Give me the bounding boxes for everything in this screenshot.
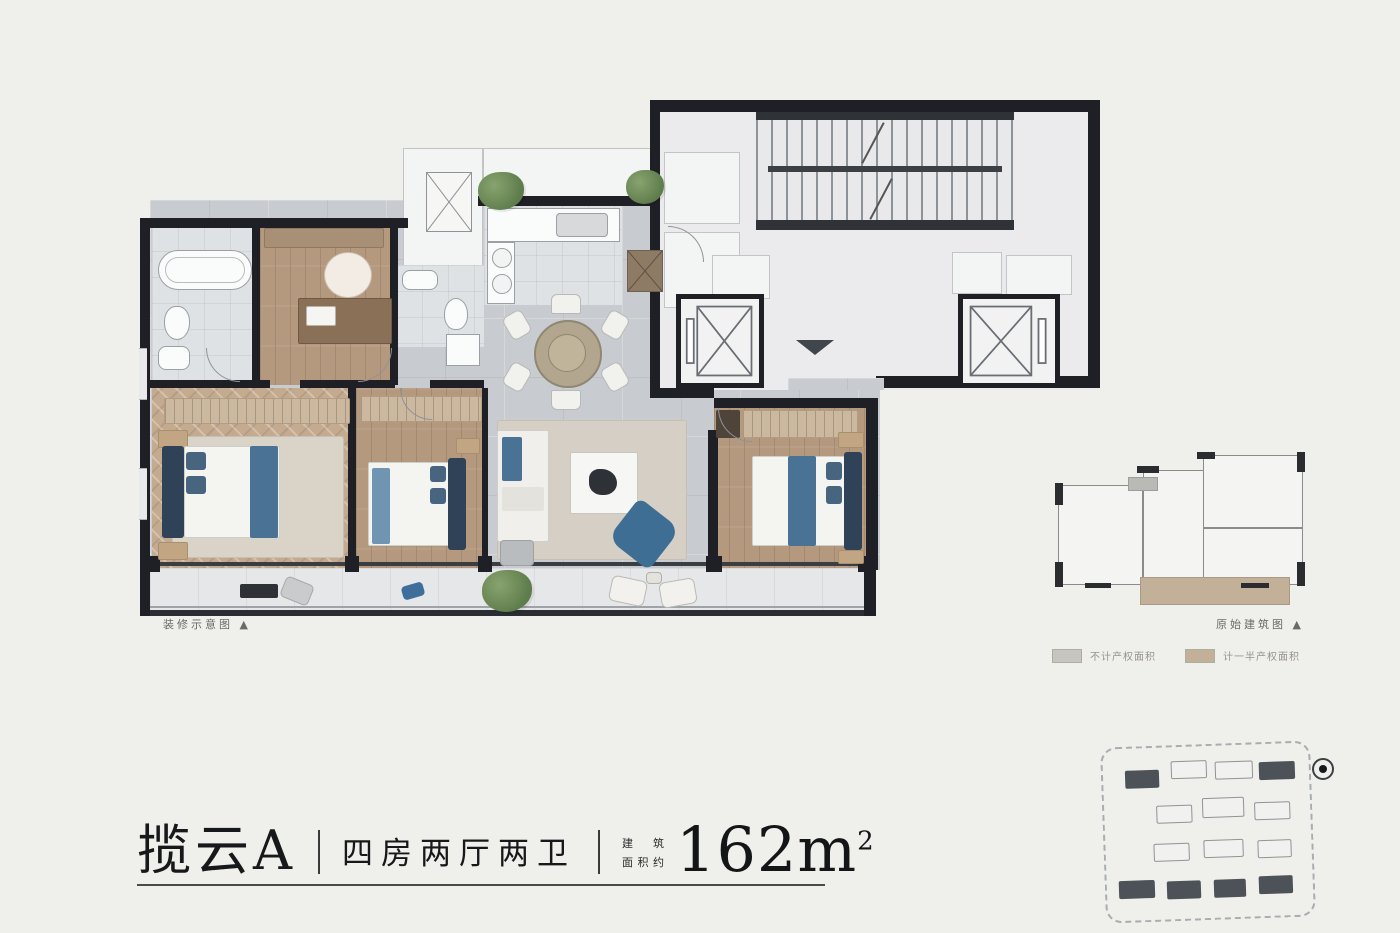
site-building xyxy=(1203,839,1244,858)
dining-chair-icon xyxy=(551,390,581,410)
legend-item: 计一半产权面积 xyxy=(1185,648,1300,663)
tray-icon xyxy=(646,572,662,584)
unit-name: 揽云A xyxy=(137,824,296,878)
wall xyxy=(252,225,260,383)
key-wall xyxy=(1137,466,1159,473)
key-wall xyxy=(1297,562,1305,586)
pillow xyxy=(430,466,446,482)
divider xyxy=(598,830,600,874)
shower-icon xyxy=(446,334,480,366)
key-wall xyxy=(1085,583,1111,588)
site-building-highlighted xyxy=(1259,875,1294,894)
title-bar: 揽云A 四房两厅两卫 建筑 面积约 162m2 xyxy=(137,822,875,878)
stair-rail xyxy=(768,166,1002,172)
wall xyxy=(650,388,714,398)
chair-icon xyxy=(324,252,372,298)
elevator-icon xyxy=(676,294,764,388)
toilet-icon xyxy=(444,298,468,330)
key-wall xyxy=(1241,583,1269,588)
wall xyxy=(300,380,395,388)
bathtub-icon xyxy=(158,250,252,290)
right-plan-caption: 原始建筑图 ▲ xyxy=(1216,616,1304,632)
site-building xyxy=(1171,760,1208,779)
unit-layout: 四房两厅两卫 xyxy=(342,831,576,878)
site-building-highlighted xyxy=(1214,879,1247,898)
wall xyxy=(650,100,1100,112)
key-plan xyxy=(1045,450,1315,615)
wall xyxy=(430,380,484,388)
utility-shaft xyxy=(712,255,770,299)
site-building xyxy=(1153,843,1190,862)
floorplan-page: 装修示意图 ▲ 原始建筑图 ▲ 不计产权面积 计一半产权面积 揽云A 四房两厅两… xyxy=(0,0,1400,933)
toilet-icon xyxy=(164,306,190,340)
wall xyxy=(140,218,260,228)
bed-headboard xyxy=(448,458,466,550)
stair-wall xyxy=(756,112,1014,120)
stair-wall xyxy=(756,220,1014,230)
site-building xyxy=(1215,760,1254,779)
pillow xyxy=(430,488,446,504)
key-plan-room xyxy=(1203,455,1303,528)
title-underline xyxy=(137,884,825,886)
wall xyxy=(866,398,878,570)
bed-headboard xyxy=(844,452,862,550)
kitchen-sink-icon xyxy=(556,213,608,237)
wardrobe-icon xyxy=(164,398,350,424)
site-building xyxy=(1202,797,1245,818)
wall xyxy=(650,290,660,390)
nightstand-icon xyxy=(838,550,864,564)
key-wall xyxy=(1197,452,1215,459)
key-plan-balcony xyxy=(1140,577,1290,605)
legend-label: 计一半产权面积 xyxy=(1223,648,1300,663)
coffee-table-icon xyxy=(570,452,638,514)
shelf xyxy=(264,228,384,248)
utility-shaft xyxy=(664,152,740,224)
site-building-highlighted xyxy=(1259,761,1296,780)
left-plan-caption: 装修示意图 ▲ xyxy=(163,616,251,632)
wall xyxy=(1088,100,1100,388)
site-plan xyxy=(1100,740,1316,923)
wall xyxy=(258,218,408,228)
bed-headboard xyxy=(162,446,184,538)
window xyxy=(139,348,147,400)
utility-shaft xyxy=(1006,255,1072,295)
key-plan-room xyxy=(1058,485,1143,585)
key-wall xyxy=(1055,483,1063,505)
wall xyxy=(708,430,718,568)
dining-chair-icon xyxy=(551,294,581,314)
site-building-highlighted xyxy=(1119,880,1156,899)
wall xyxy=(478,556,492,572)
pillow xyxy=(826,462,842,480)
legend-item: 不计产权面积 xyxy=(1052,648,1156,663)
shaft-box xyxy=(627,250,663,292)
wall xyxy=(140,560,150,616)
laptop-icon xyxy=(306,306,336,326)
wall xyxy=(706,556,722,572)
divider xyxy=(318,830,320,874)
unit-area: 162m2 xyxy=(676,822,875,878)
legend-swatch-tan xyxy=(1185,649,1215,663)
legend-label: 不计产权面积 xyxy=(1090,648,1156,663)
nightstand-icon xyxy=(838,432,864,448)
key-plan-strip xyxy=(1128,477,1158,491)
wall xyxy=(864,560,876,616)
bed-runner xyxy=(250,446,278,538)
sofa-icon xyxy=(497,430,549,542)
stove-icon xyxy=(492,248,512,268)
area-label: 建筑 面积约 xyxy=(622,835,666,870)
elevator-icon xyxy=(958,294,1060,388)
key-wall xyxy=(1055,562,1063,587)
legend-swatch-gray xyxy=(1052,649,1082,663)
doormat xyxy=(240,584,278,598)
site-building xyxy=(1156,805,1193,824)
north-compass-icon xyxy=(1312,758,1334,780)
stove-icon xyxy=(492,274,512,294)
sink-icon xyxy=(158,346,190,370)
bed-runner xyxy=(788,456,816,546)
site-building-highlighted xyxy=(1125,770,1160,789)
pillow xyxy=(826,486,842,504)
window xyxy=(139,468,147,520)
dining-table-icon xyxy=(534,320,602,388)
key-wall xyxy=(1297,452,1305,472)
ac-platform-icon xyxy=(426,172,472,232)
site-building xyxy=(1257,839,1292,858)
nightstand-icon xyxy=(456,438,480,454)
site-building-highlighted xyxy=(1167,880,1202,899)
sink-icon xyxy=(402,270,438,290)
utility-shaft xyxy=(952,252,1002,294)
armchair-icon xyxy=(500,540,534,566)
wall xyxy=(482,388,488,568)
site-building xyxy=(1254,801,1291,820)
pillow xyxy=(186,476,206,494)
pillow xyxy=(186,452,206,470)
wall xyxy=(714,398,878,408)
entry-arrow-icon xyxy=(796,340,834,355)
wall xyxy=(345,556,359,572)
nightstand-icon xyxy=(158,542,188,560)
entry-threshold xyxy=(788,378,884,390)
bed-runner xyxy=(372,468,390,544)
